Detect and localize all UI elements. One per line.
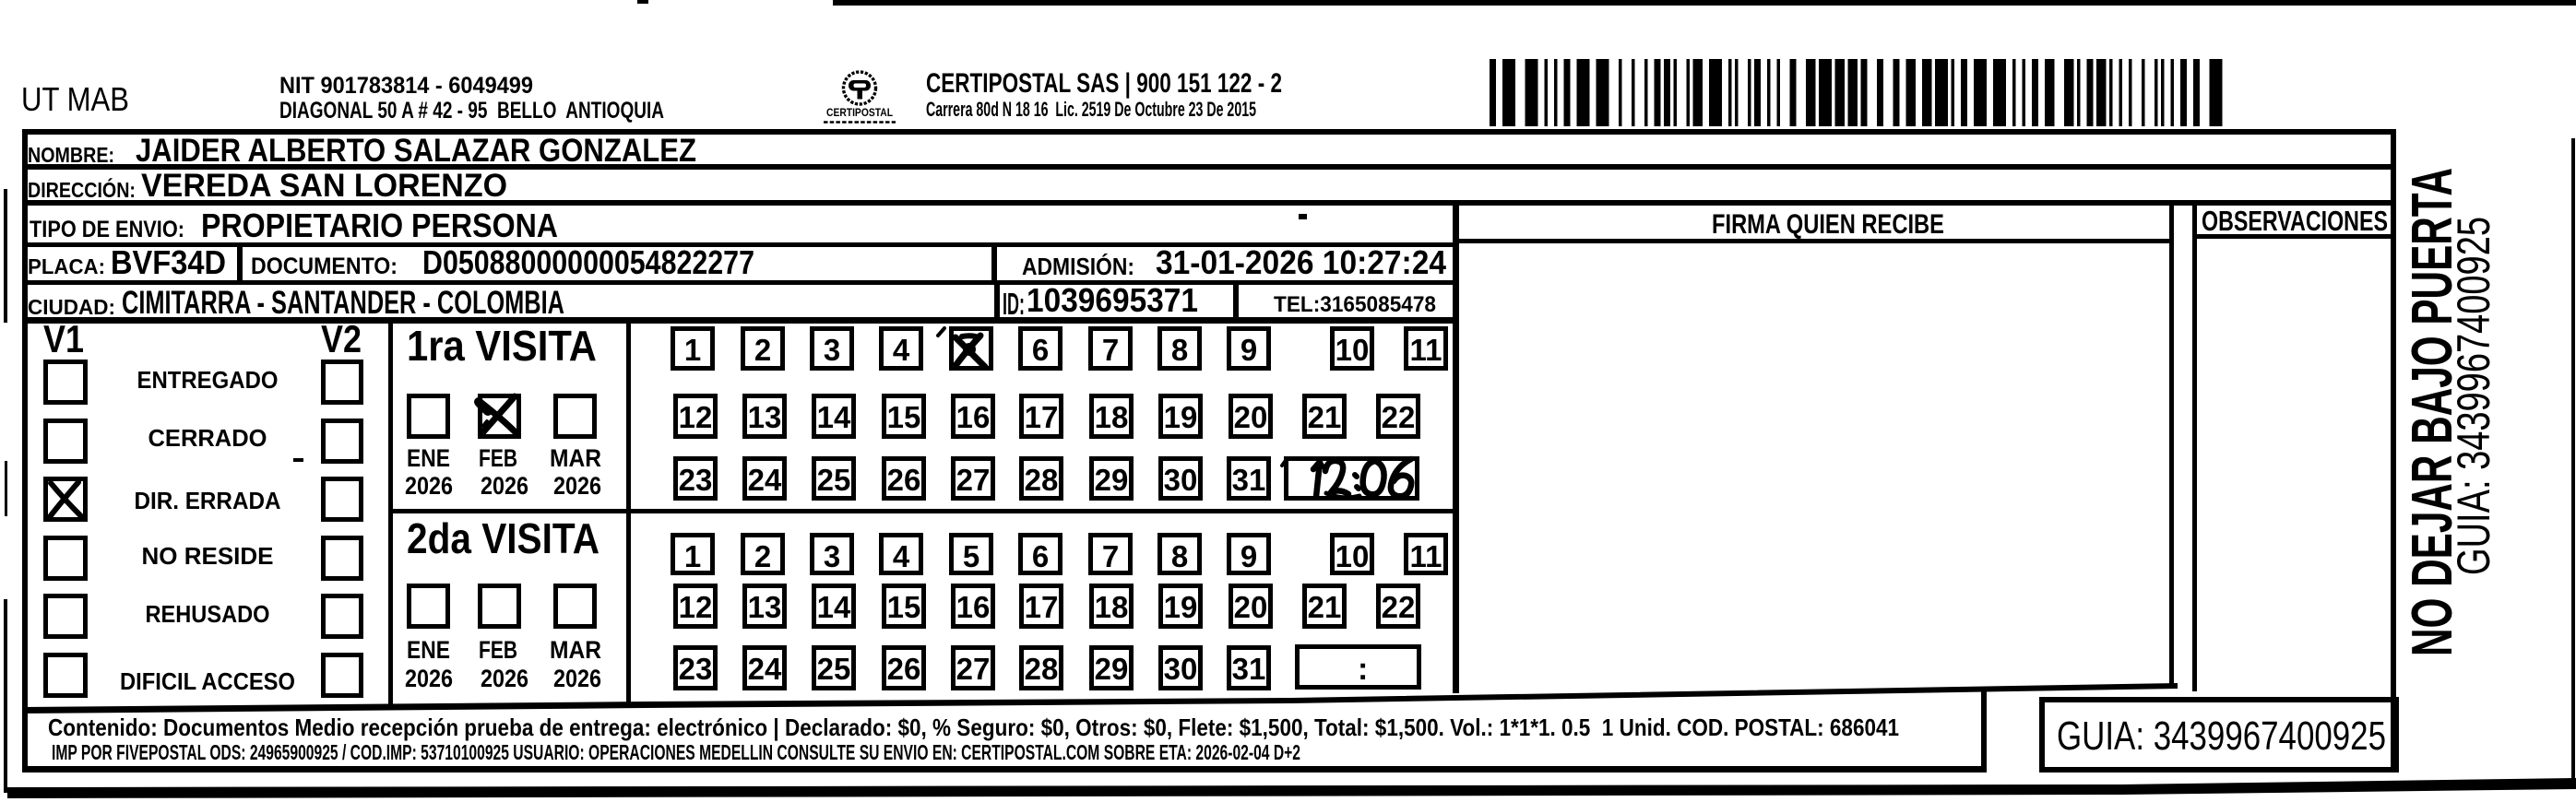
- svg-text:2026: 2026: [481, 665, 528, 692]
- svg-text:IMP POR FIVEPOSTAL ODS: 249659: IMP POR FIVEPOSTAL ODS: 24965900925 / CO…: [52, 740, 1300, 764]
- svg-text:UT MAB: UT MAB: [21, 80, 129, 118]
- svg-text:21: 21: [1308, 400, 1342, 434]
- svg-text:ENE: ENE: [407, 636, 450, 664]
- svg-text:18: 18: [1095, 400, 1129, 434]
- svg-text:25: 25: [817, 463, 851, 497]
- svg-text:DIFICIL ACCESO: DIFICIL ACCESO: [120, 667, 295, 695]
- svg-text:1ra VISITA: 1ra VISITA: [407, 322, 597, 370]
- svg-text:1039695371: 1039695371: [1027, 281, 1198, 319]
- svg-text:29: 29: [1095, 652, 1129, 686]
- svg-text:14: 14: [817, 400, 851, 434]
- svg-text:ID:: ID:: [1003, 287, 1025, 321]
- svg-text:6: 6: [1032, 333, 1049, 367]
- svg-text:FEB: FEB: [479, 444, 517, 472]
- svg-text:5: 5: [963, 539, 979, 573]
- svg-text:2026: 2026: [481, 472, 528, 500]
- svg-text:16: 16: [956, 590, 991, 624]
- svg-text:NO RESIDE: NO RESIDE: [142, 542, 274, 570]
- svg-text:CERTIPOSTAL: CERTIPOSTAL: [826, 108, 893, 119]
- svg-text:TIPO DE ENVIO:: TIPO DE ENVIO:: [30, 217, 184, 242]
- svg-text:10: 10: [1335, 539, 1370, 573]
- svg-text:2026: 2026: [553, 665, 601, 692]
- svg-text:13: 13: [748, 400, 782, 434]
- svg-text:VEREDA SAN LORENZO: VEREDA SAN LORENZO: [141, 168, 507, 204]
- svg-text:26: 26: [887, 463, 921, 497]
- svg-text:23: 23: [679, 652, 713, 686]
- svg-text:CERTIPOSTAL SAS | 900 151 122: CERTIPOSTAL SAS | 900 151 122 - 2: [926, 68, 1282, 99]
- svg-text:8: 8: [1171, 333, 1188, 367]
- svg-text:22: 22: [1382, 590, 1416, 624]
- svg-text:28: 28: [1025, 652, 1059, 686]
- svg-text:24: 24: [748, 463, 782, 497]
- svg-text::: :: [1358, 652, 1368, 687]
- svg-text:4: 4: [893, 333, 910, 367]
- svg-text:REHUSADO: REHUSADO: [146, 600, 270, 628]
- svg-text:3: 3: [824, 333, 840, 367]
- svg-text:PLACA:: PLACA:: [28, 254, 105, 278]
- svg-text:4: 4: [893, 539, 910, 573]
- svg-text:31: 31: [1232, 463, 1266, 497]
- svg-text:16: 16: [956, 400, 991, 434]
- svg-text:9: 9: [1241, 333, 1257, 367]
- svg-text:8: 8: [1171, 539, 1188, 573]
- svg-text:1: 1: [684, 539, 701, 573]
- svg-text:NIT 901783814 - 6049499: NIT 901783814 - 6049499: [279, 73, 533, 99]
- svg-text:JAIDER ALBERTO SALAZAR GONZALE: JAIDER ALBERTO SALAZAR GONZALEZ: [136, 133, 696, 169]
- svg-text:DIAGONAL 50 A # 42 - 95 BELLO: DIAGONAL 50 A # 42 - 95 BELLO ANTIOQUIA: [279, 98, 664, 124]
- svg-text:MAR: MAR: [550, 444, 601, 472]
- svg-text:OBSERVACIONES: OBSERVACIONES: [2202, 205, 2388, 237]
- svg-text:7: 7: [1102, 539, 1119, 573]
- svg-text:DIR. ERRADA: DIR. ERRADA: [135, 487, 281, 514]
- svg-text:9: 9: [1241, 539, 1257, 573]
- svg-text:10: 10: [1335, 333, 1370, 367]
- svg-text:BVF34D: BVF34D: [111, 243, 226, 281]
- svg-text:26: 26: [887, 652, 921, 686]
- svg-text:30: 30: [1164, 463, 1198, 497]
- svg-text:22: 22: [1382, 400, 1416, 434]
- svg-text:11: 11: [1410, 539, 1442, 573]
- svg-text:15: 15: [887, 590, 921, 624]
- svg-text:15: 15: [887, 400, 921, 434]
- svg-text:TEL:3165085478: TEL:3165085478: [1274, 292, 1436, 317]
- svg-text:NOMBRE:: NOMBRE:: [28, 143, 114, 167]
- svg-text:2: 2: [754, 539, 771, 573]
- svg-text:2da VISITA: 2da VISITA: [407, 514, 599, 562]
- svg-text:31-01-2026 10:27:24: 31-01-2026 10:27:24: [1156, 243, 1446, 281]
- svg-text:20: 20: [1234, 400, 1268, 434]
- svg-text:V2: V2: [321, 317, 362, 360]
- svg-text:24: 24: [748, 652, 782, 686]
- svg-text:Contenido: Documentos Medio re: Contenido: Documentos Medio recepción pr…: [48, 714, 1899, 741]
- svg-text:PROPIETARIO PERSONA: PROPIETARIO PERSONA: [201, 206, 558, 244]
- svg-text:23: 23: [679, 463, 713, 497]
- svg-text:V1: V1: [43, 317, 84, 360]
- svg-text:6: 6: [1032, 539, 1049, 573]
- svg-text:Carrera 80d N 18 16 Lic. 2519: Carrera 80d N 18 16 Lic. 2519 De Octubre…: [926, 98, 1256, 121]
- svg-text:12: 12: [679, 590, 713, 624]
- svg-text:CIMITARRA - SANTANDER - COLOMB: CIMITARRA - SANTANDER - COLOMBIA: [122, 285, 564, 321]
- svg-text:31: 31: [1232, 652, 1266, 686]
- svg-text:19: 19: [1164, 400, 1198, 434]
- svg-text:27: 27: [956, 463, 991, 497]
- svg-text:FIRMA QUIEN RECIBE: FIRMA QUIEN RECIBE: [1712, 209, 1944, 240]
- svg-text:20: 20: [1234, 590, 1268, 624]
- svg-text:2026: 2026: [405, 472, 453, 500]
- svg-text:ENE: ENE: [407, 444, 450, 472]
- svg-text:GUIA: 3439967400925: GUIA: 3439967400925: [2057, 714, 2386, 759]
- svg-text:17: 17: [1025, 400, 1059, 434]
- svg-text:29: 29: [1095, 463, 1129, 497]
- svg-text:CIUDAD:: CIUDAD:: [28, 295, 115, 319]
- svg-text:25: 25: [817, 652, 851, 686]
- svg-text:CERRADO: CERRADO: [148, 424, 267, 452]
- svg-text:FEB: FEB: [479, 636, 517, 664]
- svg-text:13: 13: [748, 590, 782, 624]
- svg-text:12: 12: [679, 400, 713, 434]
- svg-text:ENTREGADO: ENTREGADO: [137, 366, 279, 394]
- svg-text:11: 11: [1410, 333, 1442, 367]
- svg-text:18: 18: [1095, 590, 1129, 624]
- svg-text:D05088000000054822277: D05088000000054822277: [422, 243, 754, 281]
- svg-text:2026: 2026: [553, 472, 601, 500]
- svg-text:19: 19: [1164, 590, 1198, 624]
- svg-text:17: 17: [1025, 590, 1059, 624]
- svg-text:1: 1: [684, 333, 701, 367]
- svg-text:GUIA: 3439967400925: GUIA: 3439967400925: [2448, 217, 2499, 575]
- svg-text:7: 7: [1102, 333, 1119, 367]
- svg-text:27: 27: [956, 652, 991, 686]
- svg-text:30: 30: [1164, 652, 1198, 686]
- svg-text:2026: 2026: [405, 665, 453, 692]
- svg-text:3: 3: [824, 539, 840, 573]
- svg-text:28: 28: [1025, 463, 1059, 497]
- svg-text:DIRECCIÓN:: DIRECCIÓN:: [28, 177, 136, 202]
- svg-text:2: 2: [754, 333, 771, 367]
- svg-text:21: 21: [1308, 590, 1342, 624]
- svg-text:ADMISIÓN:: ADMISIÓN:: [1022, 253, 1134, 280]
- svg-text:MAR: MAR: [550, 636, 601, 664]
- svg-text:14: 14: [817, 590, 851, 624]
- svg-text:DOCUMENTO:: DOCUMENTO:: [251, 254, 398, 279]
